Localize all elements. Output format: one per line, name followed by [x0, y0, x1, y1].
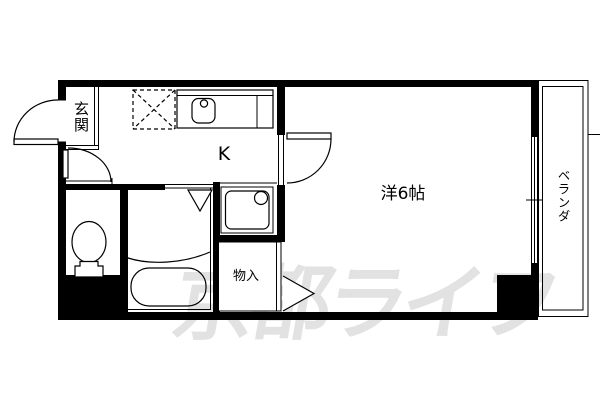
wall-top — [58, 80, 538, 87]
washing-drain-icon — [255, 192, 268, 205]
kitchen-faucet-icon — [200, 100, 207, 107]
room-door-arc — [287, 139, 331, 183]
window-glass-lines — [526, 137, 543, 263]
bath-door-triangle-icon — [188, 190, 212, 211]
wall-mass-toilet-bottom — [58, 275, 122, 318]
entrance-door-leaf — [14, 139, 58, 145]
hall-door-leaf — [63, 150, 68, 178]
washing-machine-area — [221, 187, 273, 233]
closet-label: 物入 — [233, 269, 259, 284]
wall-kitchen-room-upper — [277, 87, 285, 135]
entrance-label: 玄関 — [72, 101, 90, 133]
wall-pier-bottom-right — [497, 275, 537, 312]
wall-right-upper — [531, 80, 538, 137]
floorplan-canvas: 京都ライフ — [0, 0, 600, 400]
kitchen-area — [133, 90, 273, 129]
toilet-bowl — [72, 222, 106, 263]
wall-closet-top — [218, 235, 285, 242]
toilet-tank — [75, 262, 103, 278]
kitchen-sink — [192, 99, 215, 124]
refrigerator-space-cross — [133, 90, 175, 129]
floorplan-drawing: 京都ライフ — [0, 0, 600, 400]
room-door-leaf — [287, 133, 331, 139]
wall-kitchen-room-lower — [277, 185, 285, 242]
wall-corridor — [58, 184, 165, 190]
entrance-door-arc — [14, 100, 58, 142]
western-room-label: 洋6帖 — [381, 184, 426, 204]
toilet-area — [72, 222, 106, 278]
entrance-opening — [57, 100, 67, 142]
hall-door-arc — [68, 148, 111, 182]
room-door — [287, 133, 331, 183]
hall-door-sill — [65, 178, 112, 184]
wall-bottom — [58, 312, 538, 320]
wall-left-upper — [58, 87, 66, 100]
veranda-label: ベランダ — [556, 169, 571, 223]
kitchen-label: K — [218, 143, 231, 165]
